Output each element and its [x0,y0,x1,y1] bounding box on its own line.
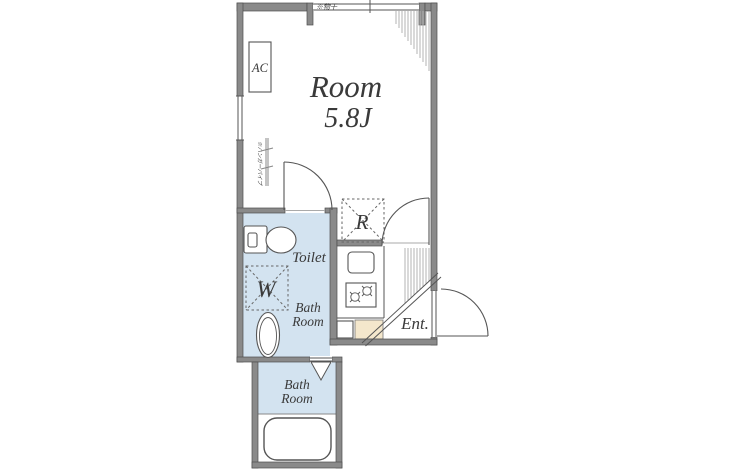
washbasin [257,313,280,358]
bathtub [264,418,331,460]
washer-label: W [256,277,277,302]
fridge-label: R [355,210,369,234]
entrance-door [437,289,488,336]
entrance-opening [430,291,438,337]
ac-label: AC [251,61,269,75]
laundry-note: ※物干 [316,3,338,11]
kitchen-sink [348,252,374,273]
entrance-label: Ent. [400,314,429,333]
ac-unit: AC [249,42,271,92]
bathroom-lower-label-line2: Room [280,391,313,406]
toilet-label: Toilet [292,250,326,266]
bathroom-upper-label-line1: Bath [295,300,321,315]
bathroom-lower-label-line1: Bath [284,377,310,392]
room-name-label: Room [309,69,382,104]
bathroom-upper-label-line2: Room [291,314,324,329]
hanger-pipe-note: ※ハンガーパイプ [256,141,263,186]
shoe-cabinet [337,321,353,338]
stove [346,283,376,307]
room-size-label: 5.8J [324,103,373,134]
floor-plan: AC ※ハンガーパイプ ※物干 W R [0,0,730,470]
window-left [236,96,244,140]
